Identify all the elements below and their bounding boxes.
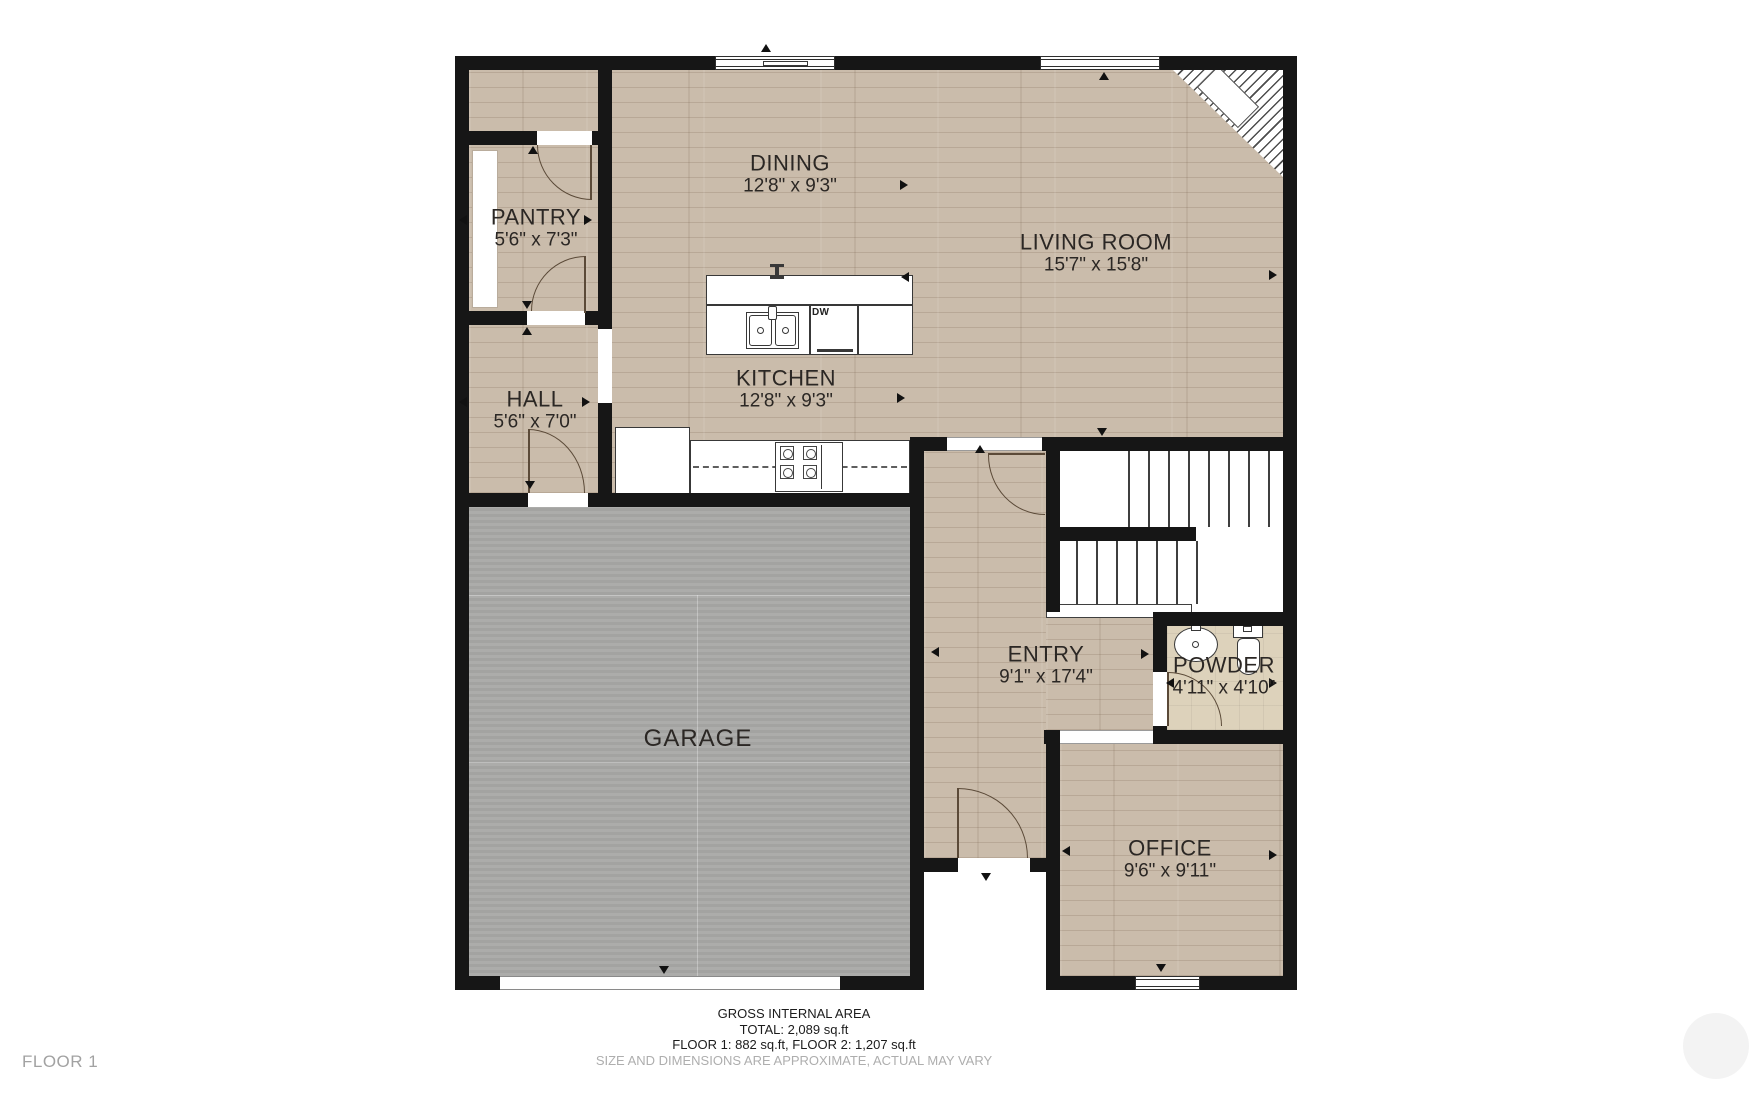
room-dims: 9'6" x 9'11": [1124, 861, 1216, 883]
stair-tread: [1156, 541, 1158, 604]
opening-marker: [1156, 964, 1166, 972]
stair-tread: [1128, 451, 1130, 527]
dimension-arrow: [901, 272, 909, 282]
dimension-arrow: [1269, 850, 1277, 860]
room-dims: 9'1" x 17'4": [999, 667, 1093, 689]
island-divider: [809, 305, 811, 354]
watermark-circle: [1683, 1013, 1749, 1079]
dimension-arrow: [1062, 846, 1070, 856]
burner: [780, 465, 794, 479]
opening-marker: [528, 146, 538, 154]
opening-marker: [525, 481, 535, 489]
dimension-arrow: [459, 215, 467, 225]
powder-sink-drain: [1192, 641, 1199, 648]
room-label-kitchen: KITCHEN 12'8" x 9'3": [736, 365, 836, 412]
room-dims: 5'6" x 7'3": [491, 230, 581, 252]
wall-pantry-right-lower: [598, 403, 612, 493]
room-label-entry: ENTRY 9'1" x 17'4": [999, 641, 1093, 688]
refrigerator: [615, 427, 690, 494]
room-name: LIVING ROOM: [1020, 229, 1172, 254]
wall-pantry-right-upper: [598, 70, 612, 329]
wall-entry-bottom-a: [910, 858, 958, 872]
floor-label: FLOOR 1: [22, 1052, 98, 1072]
stair-tread: [1228, 451, 1230, 527]
dimension-arrow: [931, 647, 939, 657]
room-label-hall: HALL 5'6" x 7'0": [493, 386, 576, 433]
wall-left: [455, 56, 469, 990]
room-name: KITCHEN: [736, 365, 836, 390]
room-name: OFFICE: [1124, 835, 1216, 860]
living-room-window: [1040, 56, 1160, 70]
wall-top: [455, 56, 1297, 70]
wall-garage-top: [455, 493, 924, 507]
kitchen-entry-doorway: [947, 437, 1042, 451]
room-name: HALL: [493, 386, 576, 411]
wall-alcove-bottom-b: [592, 131, 612, 145]
toilet-flush-button: [1243, 626, 1252, 632]
opening-marker: [975, 445, 985, 453]
garage-seam: [697, 595, 698, 976]
wall-pantry-bottom-a: [455, 311, 527, 325]
window-sash: [763, 61, 808, 66]
wall-office-top-block: [1044, 730, 1060, 744]
hall-garage-door-gap: [528, 493, 588, 507]
wall-stair-divider: [1046, 527, 1196, 541]
door-leaf: [988, 453, 1045, 455]
front-door-gap: [958, 858, 1030, 872]
stair-tread: [1208, 451, 1210, 527]
room-name: PANTRY: [491, 204, 581, 229]
opening-marker: [761, 44, 771, 52]
wall-pantry-bottom-b: [585, 311, 612, 325]
burner: [803, 446, 817, 460]
room-label-dining: DINING 12'8" x 9'3": [743, 150, 837, 197]
stair-tread: [1148, 451, 1150, 527]
office-window: [1135, 976, 1200, 990]
dishwasher-label: DW: [812, 307, 829, 318]
pantry-bottom-door-gap: [527, 311, 585, 325]
island-pendant-symbol: [775, 264, 779, 279]
wall-powder-bottom: [1153, 730, 1283, 744]
wall-entry-bottom-b: [1030, 858, 1060, 872]
room-label-office: OFFICE 9'6" x 9'11": [1124, 835, 1216, 882]
stair-tread: [1176, 541, 1178, 604]
sink-drain: [782, 327, 789, 334]
door-leaf: [584, 256, 586, 313]
entry-office-opening: [1060, 730, 1153, 744]
footer-line2: TOTAL: 2,089 sq.ft: [596, 1022, 992, 1038]
wall-living-stair: [1042, 437, 1283, 451]
pantry-top-door-gap: [537, 131, 592, 145]
room-dims: 15'7" x 15'8": [1020, 255, 1172, 277]
opening-marker: [1099, 72, 1109, 80]
wall-living-stub: [924, 437, 947, 451]
door-leaf: [590, 145, 592, 200]
sink-drain: [757, 327, 764, 334]
stair-tread: [1136, 541, 1138, 604]
room-label-powder: POWDER 4'11" x 4'10": [1173, 652, 1276, 699]
island-divider: [857, 305, 859, 354]
floor-plan-canvas: DW: [0, 0, 1753, 1094]
dishwasher-door: [817, 349, 853, 352]
sink-faucet: [768, 306, 777, 320]
wall-alcove-bottom-a: [455, 131, 537, 145]
dimension-arrow: [1269, 270, 1277, 280]
dimension-arrow: [459, 397, 467, 407]
room-name: DINING: [743, 150, 837, 175]
dimension-arrow: [582, 397, 590, 407]
opening-marker: [522, 327, 532, 335]
stair-tread: [1268, 451, 1270, 527]
wall-powder-left-a: [1153, 626, 1167, 672]
powder-door-gap: [1153, 672, 1167, 726]
oven-door-line: [821, 445, 822, 489]
stair-tread: [1168, 451, 1170, 527]
opening-marker: [1097, 428, 1107, 436]
room-dims: 12'8" x 9'3": [736, 391, 836, 413]
opening-marker: [981, 873, 991, 881]
room-label-living: LIVING ROOM 15'7" x 15'8": [1020, 229, 1172, 276]
wall-garage-right-entry-left: [910, 437, 924, 990]
dimension-arrow: [584, 215, 592, 225]
stair-tread: [1096, 541, 1098, 604]
room-label-pantry: PANTRY 5'6" x 7'3": [491, 204, 581, 251]
wall-powder-top: [1153, 612, 1283, 626]
stair-tread: [1116, 541, 1118, 604]
burner: [803, 465, 817, 479]
room-name: POWDER: [1173, 652, 1276, 677]
room-name: ENTRY: [999, 641, 1093, 666]
gross-internal-area-note: GROSS INTERNAL AREA TOTAL: 2,089 sq.ft F…: [596, 1006, 992, 1068]
footer-disclaimer: SIZE AND DIMENSIONS ARE APPROXIMATE, ACT…: [596, 1053, 992, 1069]
room-dims: 4'11" x 4'10": [1173, 678, 1276, 700]
dimension-arrow: [897, 393, 905, 403]
garage-seam: [469, 762, 910, 763]
room-label-garage: GARAGE: [644, 725, 753, 753]
room-dims: 5'6" x 7'0": [493, 412, 576, 434]
stair-tread: [1188, 451, 1190, 527]
stair-tread: [1076, 541, 1078, 604]
wall-right: [1283, 56, 1297, 990]
dimension-arrow: [1141, 649, 1149, 659]
room-dims: 12'8" x 9'3": [743, 176, 837, 198]
burner: [780, 446, 794, 460]
footer-line3: FLOOR 1: 882 sq.ft, FLOOR 2: 1,207 sq.ft: [596, 1037, 992, 1053]
stair-tread: [1196, 541, 1198, 604]
opening-marker: [522, 301, 532, 309]
opening-marker: [659, 966, 669, 974]
footer-line1: GROSS INTERNAL AREA: [596, 1006, 992, 1022]
room-name: GARAGE: [644, 725, 753, 753]
dimension-arrow: [900, 180, 908, 190]
garage-seam: [469, 595, 910, 596]
front-door-leaf: [957, 788, 959, 858]
cooktop: [775, 442, 843, 492]
garage-door: [500, 976, 840, 990]
hall-kitchen-opening: [598, 329, 612, 403]
stair-tread: [1248, 451, 1250, 527]
